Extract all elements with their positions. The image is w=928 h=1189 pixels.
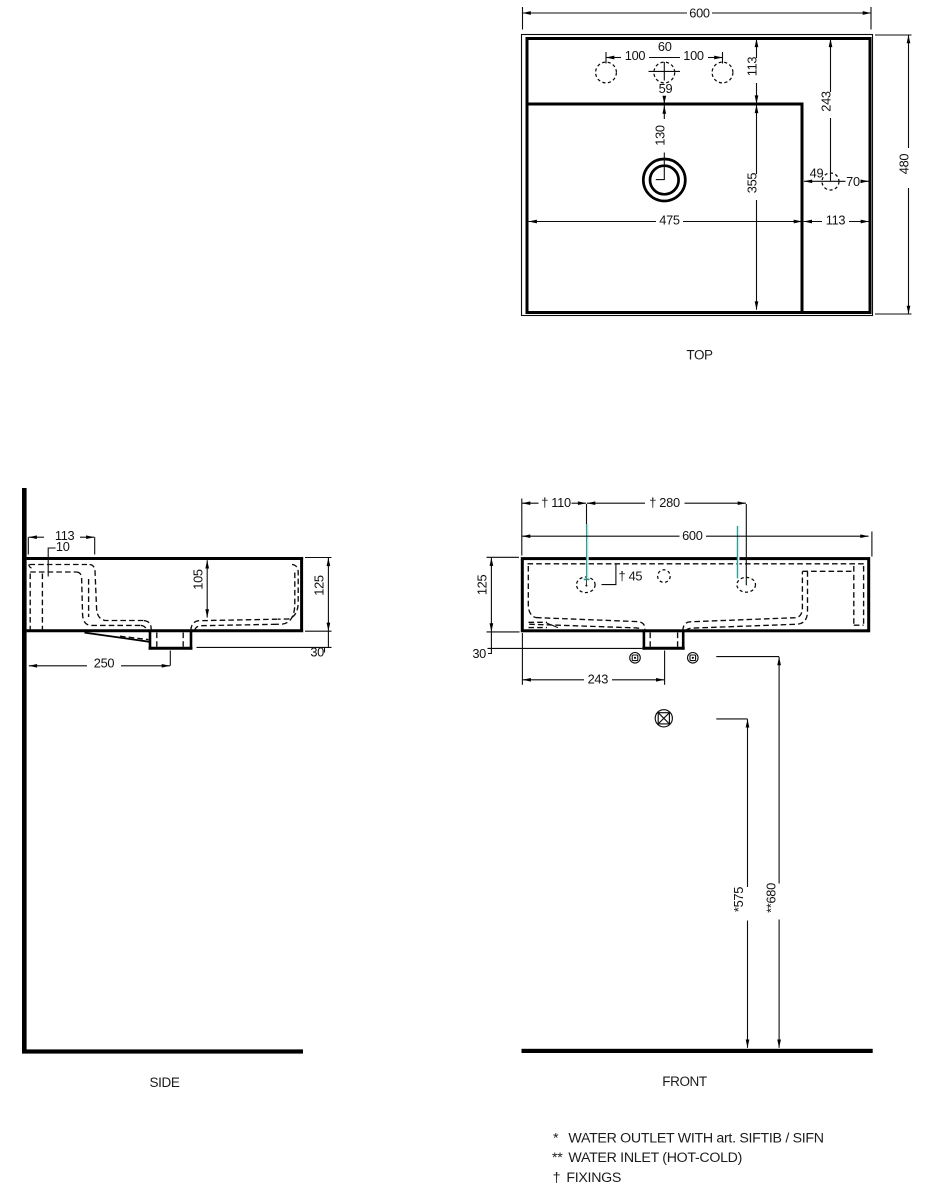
svg-text:† 45: † 45 xyxy=(619,568,643,583)
svg-text:355: 355 xyxy=(744,173,759,194)
svg-text:100: 100 xyxy=(625,48,646,63)
svg-text:† 110: † 110 xyxy=(541,495,571,510)
svg-text:WATER OUTLET WITH art. SIFTIB: WATER OUTLET WITH art. SIFTIB / SIFN xyxy=(568,1130,823,1146)
svg-text:113: 113 xyxy=(826,213,846,228)
svg-text:FRONT: FRONT xyxy=(662,1074,707,1089)
svg-text:†: † xyxy=(553,1170,561,1186)
svg-text:130: 130 xyxy=(652,125,667,146)
svg-text:113: 113 xyxy=(744,57,759,77)
svg-text:125: 125 xyxy=(312,575,327,596)
svg-text:600: 600 xyxy=(682,528,703,543)
svg-text:243: 243 xyxy=(588,672,609,687)
svg-text:*: * xyxy=(553,1130,559,1146)
svg-text:600: 600 xyxy=(689,6,710,21)
svg-text:49: 49 xyxy=(810,165,824,180)
svg-text:30: 30 xyxy=(472,646,486,661)
svg-text:475: 475 xyxy=(659,213,680,228)
svg-text:WATER INLET (HOT-COLD): WATER INLET (HOT-COLD) xyxy=(568,1150,742,1166)
svg-text:**: ** xyxy=(552,1150,563,1166)
svg-text:10: 10 xyxy=(56,539,70,554)
svg-text:**680: **680 xyxy=(764,883,779,913)
svg-text:125: 125 xyxy=(474,574,489,595)
svg-text:FIXINGS: FIXINGS xyxy=(566,1170,621,1186)
svg-text:70: 70 xyxy=(846,174,860,189)
svg-text:243: 243 xyxy=(818,91,833,112)
svg-text:TOP: TOP xyxy=(686,348,713,363)
svg-text:480: 480 xyxy=(896,154,911,175)
svg-text:250: 250 xyxy=(94,656,115,671)
svg-text:† 280: † 280 xyxy=(649,495,680,510)
svg-text:105: 105 xyxy=(191,569,206,590)
svg-text:*575: *575 xyxy=(731,887,746,912)
svg-text:30: 30 xyxy=(310,645,324,660)
svg-text:100: 100 xyxy=(683,48,704,63)
svg-text:60: 60 xyxy=(658,39,672,54)
svg-text:SIDE: SIDE xyxy=(150,1075,180,1090)
svg-text:59: 59 xyxy=(659,81,673,96)
